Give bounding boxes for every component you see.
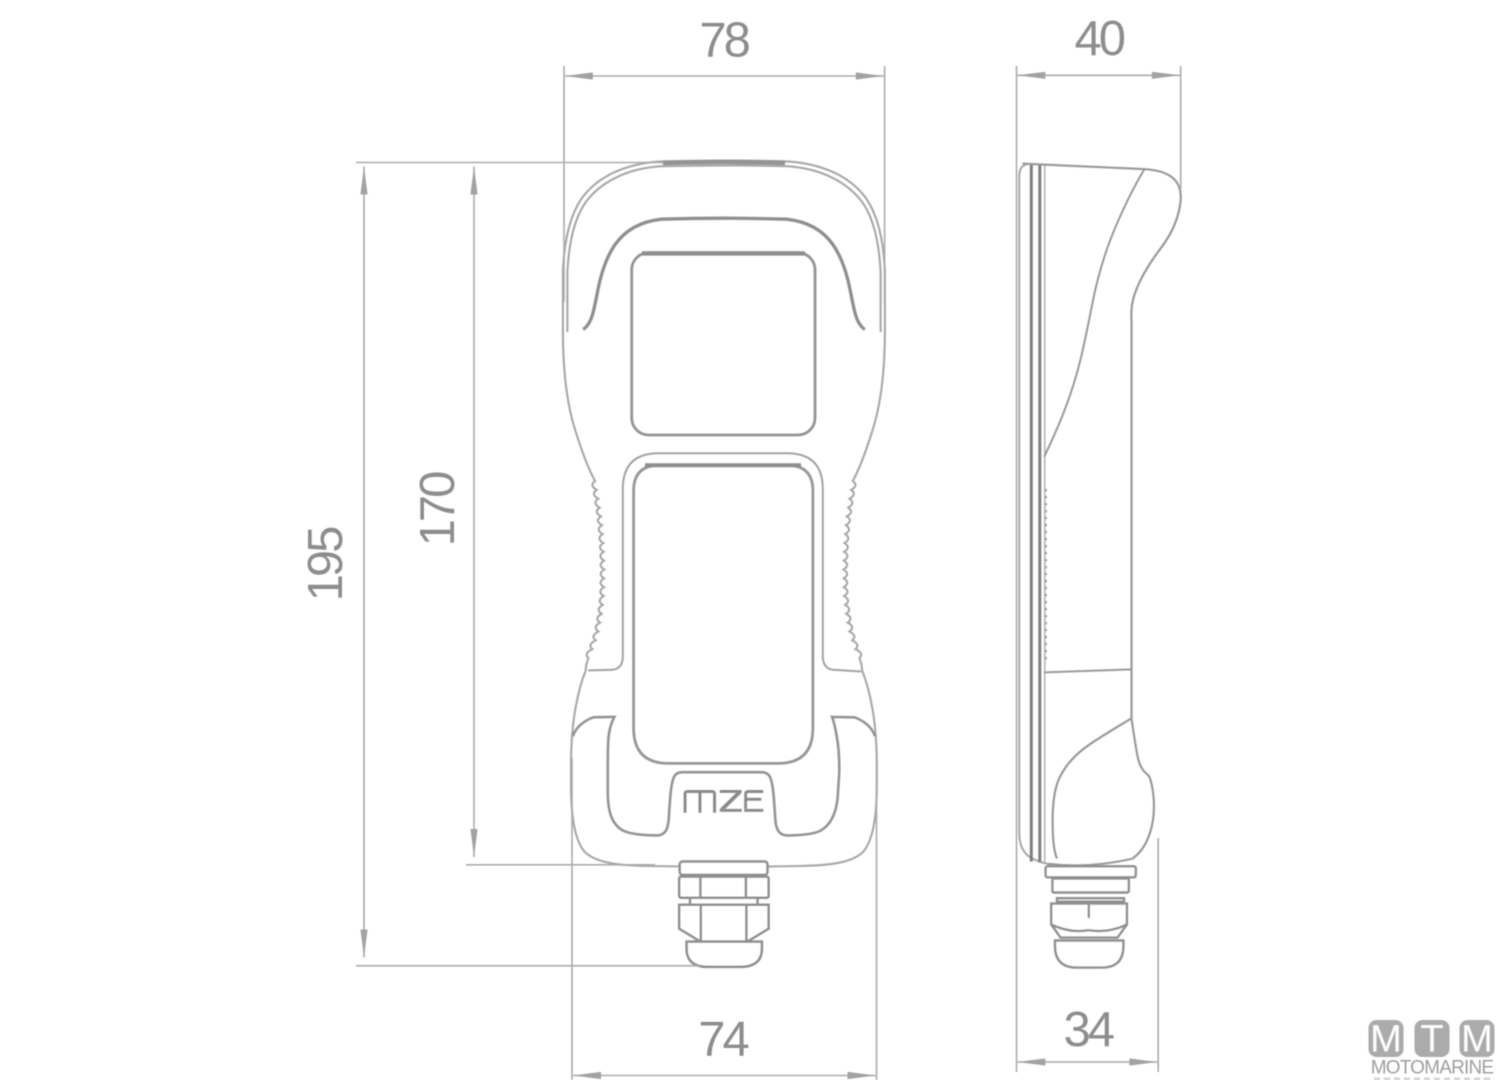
- svg-text:M: M: [1461, 1019, 1493, 1061]
- svg-text:78: 78: [699, 14, 749, 68]
- svg-text:T: T: [1420, 1019, 1443, 1061]
- svg-text:195: 195: [299, 527, 353, 602]
- svg-text:170: 170: [411, 472, 465, 547]
- svg-text:34: 34: [1063, 1003, 1113, 1057]
- svg-text:MOTOMARINE: MOTOMARINE: [1371, 1058, 1494, 1079]
- svg-text:74: 74: [698, 1013, 748, 1067]
- svg-text:40: 40: [1074, 12, 1124, 66]
- svg-text:M: M: [1370, 1019, 1402, 1061]
